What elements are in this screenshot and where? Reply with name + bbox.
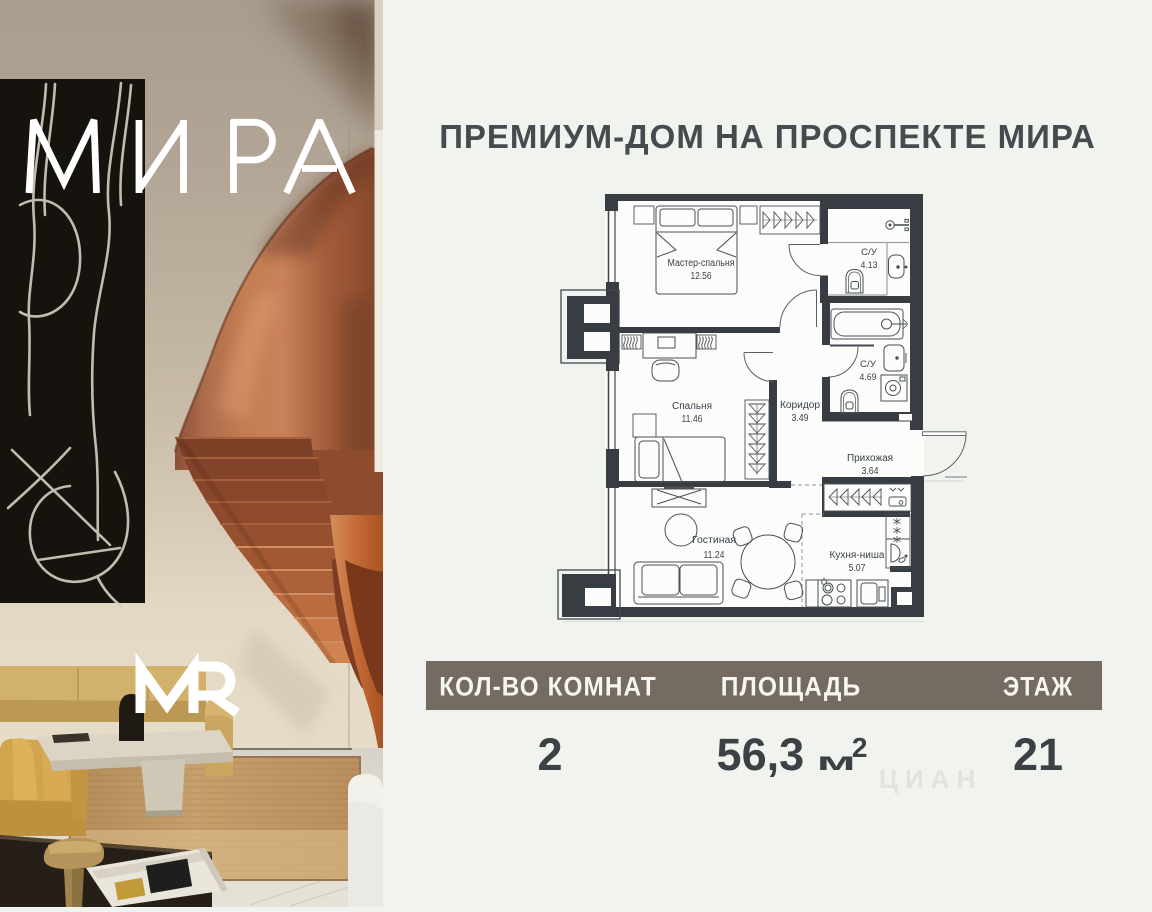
svg-text:11.46: 11.46 <box>682 414 703 425</box>
svg-text:С/У: С/У <box>861 246 877 257</box>
svg-text:Коридор: Коридор <box>780 400 820 411</box>
svg-text:Гостиная: Гостиная <box>692 535 736 546</box>
svg-text:Спальня: Спальня <box>672 401 712 412</box>
svg-text:Прихожая: Прихожая <box>847 453 893 464</box>
svg-text:Кухня-ниша: Кухня-ниша <box>830 550 885 561</box>
svg-text:4.13: 4.13 <box>861 259 878 270</box>
svg-text:3.64: 3.64 <box>862 466 879 477</box>
svg-text:11.24: 11.24 <box>704 550 725 561</box>
svg-text:Мастер-спальня: Мастер-спальня <box>668 258 735 269</box>
svg-text:3.49: 3.49 <box>792 413 809 424</box>
svg-text:12.56: 12.56 <box>691 271 712 282</box>
svg-text:5.07: 5.07 <box>849 563 866 574</box>
svg-text:С/У: С/У <box>860 358 876 369</box>
svg-text:4.69: 4.69 <box>860 371 877 382</box>
